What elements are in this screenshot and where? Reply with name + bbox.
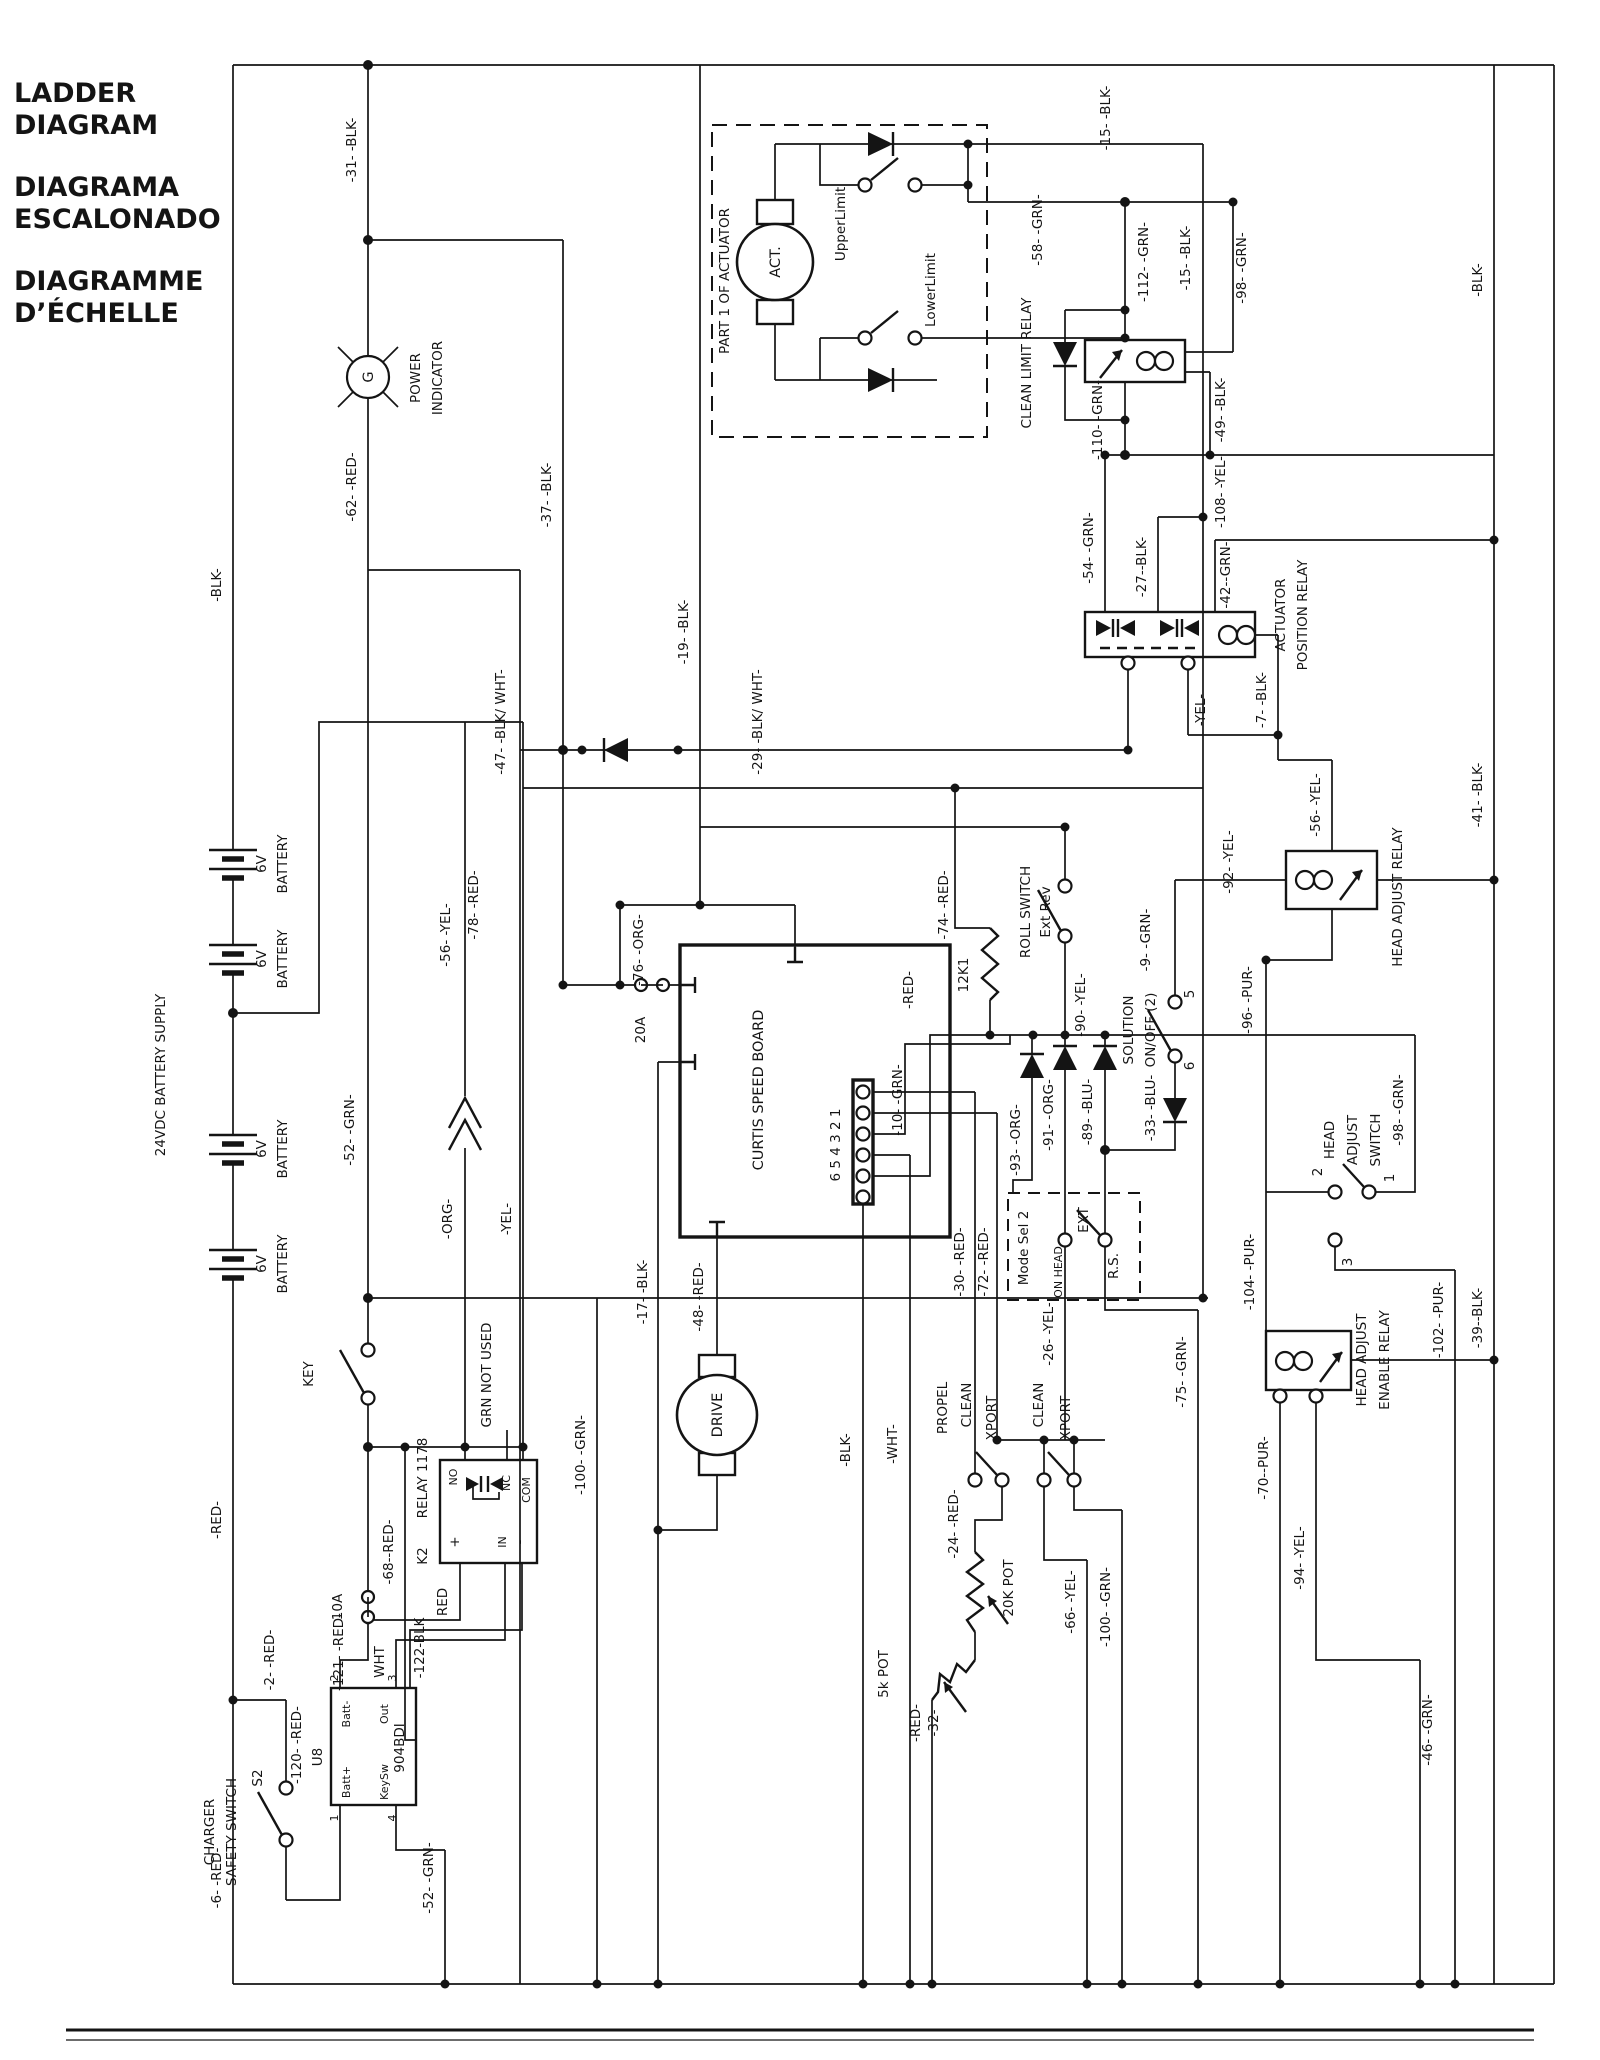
lamp-letter: G: [361, 371, 377, 382]
diode-91: [1053, 1046, 1077, 1070]
head-adjust-relay: [1286, 851, 1377, 909]
power-indicator-lamp: G: [338, 347, 398, 407]
page-title-es-1: DIAGRAMA: [14, 172, 179, 203]
resistor-12k1-label: 12K1: [956, 958, 972, 993]
battery-symbol: [209, 850, 257, 878]
page-title-en-1: LADDER: [14, 78, 136, 109]
propel-label: PROPEL: [935, 1381, 951, 1434]
xport-label-1: XPORT: [984, 1395, 1000, 1440]
actuator-position-relay-label-1: ACTUATOR: [1273, 579, 1289, 652]
battery-supply-label: 24VDC BATTERY SUPPLY: [153, 993, 169, 1156]
wire-label-102-pur: -102- -PUR-: [1431, 1282, 1447, 1359]
mode-rs-label: R.S.: [1106, 1253, 1122, 1279]
key-switch: [340, 1344, 375, 1405]
diode-89: [1093, 1046, 1117, 1070]
head-adjust-enable-relay: [1266, 1331, 1351, 1403]
curtis-pin-numbers: 6 5 4 3 2 1: [828, 1109, 844, 1182]
battery2-label: BATTERY: [275, 929, 291, 989]
u8-batt-plus: Batt+: [340, 1766, 353, 1798]
pot-20k-label: 20K POT: [1001, 1559, 1017, 1617]
wire-label-68-red: -68--RED-: [381, 1519, 397, 1584]
clean-limit-relay-label: CLEAN LIMIT RELAY: [1019, 297, 1035, 429]
drive-motor: DRIVE: [677, 1355, 757, 1475]
solution-terminal-6: 6: [1182, 1062, 1198, 1071]
wire-label-52-grn-bottom: -52- -GRN-: [421, 1842, 437, 1914]
wire-label-wht-drive: -WHT-: [885, 1424, 901, 1464]
wire-label-30-red: -30- -RED-: [952, 1227, 968, 1296]
wire-label-75-grn: -75- -GRN-: [1174, 1336, 1190, 1408]
wire-label-6-red: -6- -RED-: [209, 1848, 225, 1909]
u8-id: U8: [310, 1748, 326, 1766]
battery4-v: 6V: [254, 1254, 270, 1273]
charger-safety-switch-s2: [258, 1782, 293, 1847]
wire-label-wht-plain: WHT: [372, 1645, 388, 1677]
clean-limit-diode: [1053, 342, 1077, 366]
curtis-connector: [853, 1080, 873, 1204]
relay-k2-com: COM: [520, 1477, 533, 1503]
wire-label-108-yel: -108- -YEL-: [1213, 456, 1229, 528]
head-adjust-switch-label-3: SWITCH: [1368, 1114, 1384, 1167]
relay-k2-id: K2: [415, 1547, 431, 1564]
wire-label-7-blk: -7- -BLK-: [1254, 672, 1270, 728]
u8-pin-4: 4: [386, 1815, 399, 1822]
wire-label-15-blk-top: -15- -BLK-: [1098, 86, 1114, 151]
actuator-motor-label: ACT.: [768, 246, 784, 278]
fuse-10a: [362, 1591, 374, 1623]
wire-label-110-grn: -110- -GRN-: [1090, 380, 1106, 460]
wire-label-56-yel-right: -56- -YEL-: [1308, 773, 1324, 837]
ladder-diagram-page: G ACT.: [0, 0, 1600, 2060]
diode-93: [1020, 1054, 1044, 1078]
pot-5k-label: 5k POT: [876, 1649, 892, 1697]
wire-label-94-yel: -94- -YEL-: [1292, 1526, 1308, 1590]
battery1-label: BATTERY: [275, 834, 291, 894]
relay-k2-in: IN: [496, 1536, 509, 1547]
wire-label-26-yel: -26- -YEL-: [1041, 1302, 1057, 1366]
wire-label-92-yel: -92- -YEL-: [1221, 830, 1237, 894]
wire-label-red-plain: RED: [435, 1588, 451, 1616]
head-adjust-switch: [1329, 1164, 1376, 1247]
upper-limit-diode: [868, 132, 893, 156]
battery1-v: 6V: [254, 854, 270, 873]
wire-label-100-grn-left: -100- -GRN-: [573, 1415, 589, 1495]
solution-switch-label-2: ON/OFF (2): [1143, 993, 1159, 1068]
u8-pin-1: 1: [328, 1815, 341, 1822]
wire-label-2-red: -2- -RED-: [262, 1630, 278, 1691]
wire-label-70-pur: -70--PUR-: [1256, 1436, 1272, 1500]
wire-label-72-red: -72- -RED-: [976, 1227, 992, 1296]
wire-label-48-red: -48- -RED-: [691, 1262, 707, 1331]
head-adjust-relay-label: HEAD ADJUST RELAY: [1390, 827, 1406, 967]
clean-label-2: CLEAN: [1031, 1383, 1047, 1428]
relay-k2-minus: -: [512, 1539, 528, 1544]
charger-switch-label-2: SAFETY SWITCH: [224, 1778, 240, 1886]
wire-label-91-org: -91- -ORG-: [1041, 1079, 1057, 1151]
curtis-board-label: CURTIS SPEED BOARD: [751, 1010, 767, 1171]
wire-label-120-red: -120- -RED-: [289, 1706, 305, 1784]
head-adjust-enable-label-2: ENABLE RELAY: [1377, 1309, 1393, 1409]
head-adjust-enable-label-1: HEAD ADJUST: [1354, 1313, 1370, 1407]
u8-batt-minus: Batt-: [340, 1701, 353, 1728]
u8-pin-2: 2: [328, 1675, 341, 1682]
wire-label-org: -ORG-: [440, 1199, 456, 1240]
resistor-12k1: [982, 928, 998, 1000]
wire-label-58-grn: -58- -GRN-: [1030, 194, 1046, 266]
u8-out: Out: [378, 1703, 391, 1724]
relay-1178-name: RELAY 1178: [415, 1438, 431, 1519]
wire-label-104-pur: -104- -PUR-: [1242, 1234, 1258, 1311]
wire-label-blk-left: -BLK-: [209, 568, 225, 602]
wire-label-112-grn: -112- -GRN-: [1136, 222, 1152, 302]
battery3-label: BATTERY: [275, 1119, 291, 1179]
grn-not-used-label: GRN NOT USED: [479, 1323, 495, 1428]
wire-label-49-blk: -49- -BLK-: [1213, 378, 1229, 443]
page-title-es-2: ESCALONADO: [14, 204, 221, 235]
wire-label-red-left: -RED-: [209, 1501, 225, 1539]
wire-label-100-grn-right: -100- -GRN-: [1098, 1567, 1114, 1647]
u8-keysw: KeySw: [378, 1764, 391, 1800]
wire-label-10-grn: -10- -GRN-: [890, 1064, 906, 1136]
mode-ext-label: EXT: [1076, 1206, 1092, 1233]
fuse-20a-label: 20A: [633, 1016, 649, 1043]
wire-label-56-yel-left: -56- -YEL-: [438, 903, 454, 967]
wire-label-red-pot: -RED-: [908, 1704, 924, 1742]
u8-pin-3: 3: [386, 1675, 399, 1682]
wire-label-98-grn-right: -98- -GRN-: [1391, 1074, 1407, 1146]
actuator-part1-box: ACT.: [712, 125, 987, 437]
wire-label-96-pur: -96- -PUR-: [1240, 966, 1256, 1034]
wire-label-blk-right: -BLK-: [1470, 263, 1486, 297]
solution-switch-label-1: SOLUTION: [1121, 996, 1137, 1065]
battery-symbol: [209, 1250, 257, 1278]
ha-terminal-3: 3: [1340, 1258, 1356, 1267]
wire-label-78-red: -78- -RED-: [466, 870, 482, 939]
wire-label-42-grn: -42--GRN-: [1218, 541, 1234, 608]
wire-label-90-yel: -90- -YEL-: [1073, 973, 1089, 1037]
relay-k2-no: NO: [447, 1468, 460, 1485]
roll-switch-label-1: ROLL SWITCH: [1018, 866, 1034, 958]
drive-label: DRIVE: [710, 1393, 726, 1438]
wire-label-blk-drive: -BLK-: [838, 1433, 854, 1467]
wire-label-98-grn-top: -98- -GRN-: [1234, 232, 1250, 304]
s2-label: S2: [250, 1769, 266, 1786]
battery-symbol: [209, 945, 257, 973]
wire-label-46-grn: -46- -GRN-: [1420, 1694, 1436, 1766]
relay-k2-nc: NC: [500, 1475, 513, 1491]
clean-limit-relay: [1053, 340, 1185, 382]
wire-label-41-blk: -41- -BLK-: [1470, 763, 1486, 828]
diode-47: [604, 738, 628, 762]
page-title-fr-1: DIAGRAMME: [14, 266, 203, 297]
roll-switch-label-2: Ext Rev: [1038, 886, 1054, 937]
battery-symbol: [209, 1135, 257, 1163]
wire-label-9-grn: -9- -GRN-: [1138, 908, 1154, 971]
key-switch-label: KEY: [301, 1360, 317, 1386]
ha-terminal-2: 2: [1310, 1168, 1326, 1177]
wire-label-76-org: -76- -ORG-: [631, 914, 647, 986]
wire-label-29-blkwht: -29- -BLK/ WHT-: [750, 669, 766, 775]
wire-label-31-blk: -31- -BLK-: [344, 118, 360, 183]
head-adjust-switch-label-2: ADJUST: [1345, 1114, 1361, 1165]
head-adjust-switch-label-1: HEAD: [1322, 1121, 1338, 1159]
battery2-v: 6V: [254, 949, 270, 968]
wire-label-66-yel: -66- -YEL-: [1063, 1570, 1079, 1634]
wire-label-39-blk: -39--BLK-: [1470, 1288, 1486, 1349]
wire-label-32: -32-: [926, 1709, 942, 1736]
page-title-fr-2: D’ÉCHELLE: [14, 297, 179, 329]
actuator-position-relay: [1085, 612, 1255, 670]
relay-k2-plus: +: [447, 1536, 463, 1547]
clean-label-1: CLEAN: [959, 1383, 975, 1428]
wire-label-54-grn: -54- -GRN-: [1081, 512, 1097, 584]
wire-label-yel-mid: -YEL-: [499, 1203, 515, 1235]
mode-on-head-label: ON HEAD: [1052, 1246, 1065, 1298]
ladder-diagram-canvas: G ACT.: [0, 0, 1600, 2060]
wire-label-89-blu: -89- -BLU-: [1080, 1079, 1096, 1146]
wire-label-15-blk-rail: -15- -BLK-: [1178, 226, 1194, 291]
wire-label-27-blk: -27--BLK-: [1134, 537, 1150, 598]
power-indicator-label-1: POWER: [408, 353, 424, 403]
page-title-en-2: DIAGRAM: [14, 110, 158, 141]
wire-label-74-red: -74- -RED-: [936, 870, 952, 939]
wire-label-red-curtis: -RED-: [901, 971, 917, 1009]
wire-label-33-blu: -33- -BLU-: [1143, 1075, 1159, 1142]
actuator-position-relay-label-2: POSITION RELAY: [1295, 559, 1311, 670]
wire-label-19-blk: -19- -BLK-: [676, 600, 692, 665]
upper-limit-switch: [859, 158, 922, 192]
wire-label-47-blkwht: -47- -BLK/ WHT-: [493, 669, 509, 775]
wire-label-37-blk: -37- -BLK-: [539, 463, 555, 528]
power-indicator-label-2: INDICATOR: [430, 341, 446, 415]
connector-chevrons: [449, 1098, 481, 1150]
lower-limit-label: LowerLimit: [923, 253, 939, 327]
upper-limit-label: UpperLimit: [833, 187, 849, 261]
wire-label-17-blk: -17- -BLK-: [635, 1260, 651, 1325]
pot-5k: [932, 1660, 975, 1712]
solution-terminal-5: 5: [1182, 990, 1198, 999]
battery4-label: BATTERY: [275, 1234, 291, 1294]
wire-label-yel-actpos: -YEL-: [1193, 694, 1209, 726]
lower-limit-switch: [859, 311, 922, 345]
actuator-box-label: PART 1 OF ACTUATOR: [717, 208, 733, 354]
diode-solution: [1163, 1098, 1187, 1122]
actuator-motor: ACT.: [737, 200, 813, 324]
wire-label-62-red: -62- -RED-: [344, 452, 360, 521]
ha-terminal-1: 1: [1382, 1174, 1398, 1183]
u8-chip: 904BDI: [392, 1723, 408, 1772]
xport-label-2: XPORT: [1058, 1395, 1074, 1440]
wire-label-122-blk: -122-BLK: [412, 1617, 428, 1679]
wire-label-93-org: -93- -ORG-: [1008, 1104, 1024, 1176]
mode-sel-2-label: Mode Sel 2: [1016, 1211, 1032, 1286]
lower-limit-diode: [868, 368, 893, 392]
battery3-v: 6V: [254, 1139, 270, 1158]
wire-label-52-grn-mid: -52- -GRN-: [342, 1094, 358, 1166]
wire-label-24-red: -24- -RED-: [946, 1489, 962, 1558]
